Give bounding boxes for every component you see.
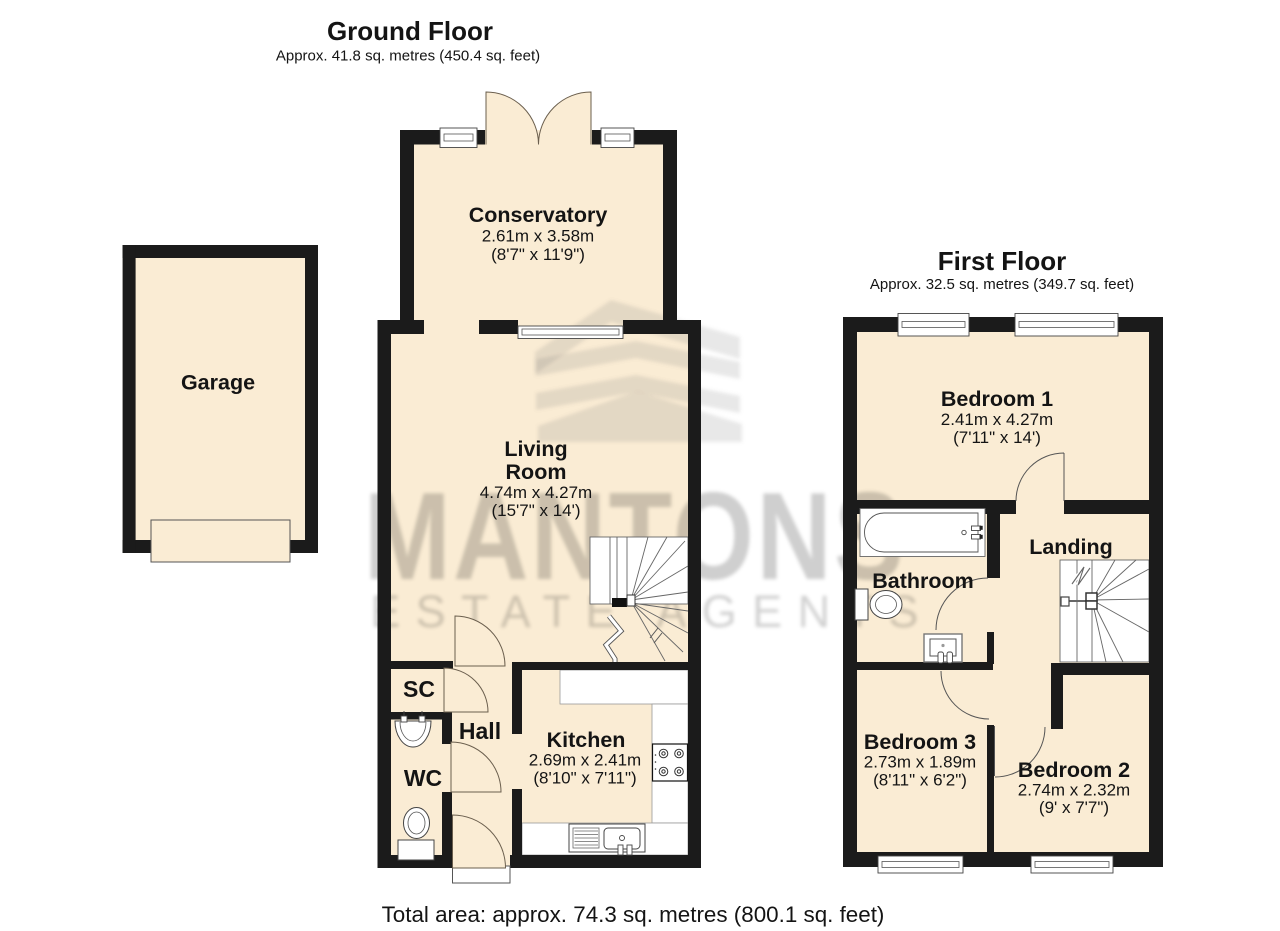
svg-text:Total area: approx. 74.3 sq. m: Total area: approx. 74.3 sq. metres (800… (382, 902, 885, 927)
svg-text:Ground Floor: Ground Floor (327, 16, 493, 46)
svg-text:Bedroom 1: Bedroom 1 (941, 387, 1053, 411)
svg-text:(15'7" x 14'): (15'7" x 14') (491, 501, 580, 520)
svg-text:Hall: Hall (459, 718, 501, 744)
svg-text:Bedroom 3: Bedroom 3 (864, 730, 976, 754)
svg-text:Living: Living (504, 437, 567, 461)
svg-text:Landing: Landing (1029, 535, 1113, 559)
svg-text:2.69m x 2.41m: 2.69m x 2.41m (529, 751, 641, 770)
svg-text:2.41m x 4.27m: 2.41m x 4.27m (941, 410, 1053, 429)
svg-text:(7'11" x 14'): (7'11" x 14') (953, 428, 1041, 447)
svg-text:Approx. 41.8 sq. metres (450.4: Approx. 41.8 sq. metres (450.4 sq. feet) (276, 48, 540, 65)
svg-text:SC: SC (403, 676, 435, 702)
svg-text:(8'10" x 7'11"): (8'10" x 7'11") (533, 769, 636, 788)
svg-text:Conservatory: Conservatory (469, 203, 608, 227)
svg-text:(8'7" x 11'9"): (8'7" x 11'9") (491, 245, 585, 264)
svg-text:2.73m x 1.89m: 2.73m x 1.89m (864, 753, 976, 772)
svg-text:4.74m x 4.27m: 4.74m x 4.27m (480, 483, 592, 502)
svg-text:Bathroom: Bathroom (872, 569, 974, 593)
svg-text:WC: WC (404, 765, 442, 791)
svg-text:2.74m x 2.32m: 2.74m x 2.32m (1018, 781, 1130, 800)
svg-text:2.61m x 3.58m: 2.61m x 3.58m (482, 227, 594, 246)
svg-text:Approx. 32.5 sq. metres (349.7: Approx. 32.5 sq. metres (349.7 sq. feet) (870, 276, 1134, 293)
svg-text:First Floor: First Floor (938, 246, 1067, 276)
svg-text:Room: Room (506, 460, 567, 484)
svg-text:(9' x 7'7"): (9' x 7'7") (1039, 798, 1109, 817)
svg-text:Bedroom 2: Bedroom 2 (1018, 758, 1130, 782)
svg-text:(8'11" x 6'2"): (8'11" x 6'2") (873, 771, 967, 790)
svg-text:Kitchen: Kitchen (547, 728, 626, 752)
svg-text:Garage: Garage (181, 371, 255, 395)
